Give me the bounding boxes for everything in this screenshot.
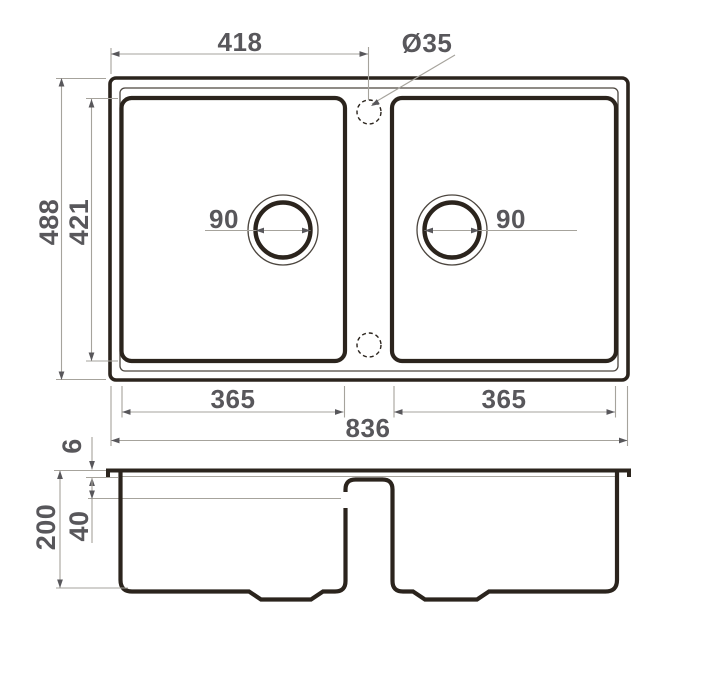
- arrowhead-icon: [57, 580, 63, 589]
- sink-outer-outline: [110, 78, 628, 380]
- dim-label-40: 40: [64, 510, 94, 541]
- arrowhead-icon: [111, 51, 120, 57]
- dim-label-836: 836: [346, 413, 391, 443]
- dim-40-upper-ledge-depth: 40: [64, 478, 95, 544]
- arrowhead-icon: [89, 491, 95, 500]
- dim-label-90-left: 90: [209, 204, 239, 234]
- section-view: [88, 471, 629, 600]
- arrowhead-icon: [394, 409, 403, 415]
- dim-label-200: 200: [31, 504, 61, 551]
- dim-label-418: 418: [218, 27, 263, 57]
- arrowhead-icon: [335, 409, 344, 415]
- tap-hole-bottom-dashed-circle: [357, 333, 381, 357]
- dim-label-365-right: 365: [482, 384, 527, 414]
- arrowhead-icon: [619, 438, 628, 444]
- arrowhead-icon: [59, 372, 65, 381]
- dim-label-488: 488: [34, 199, 64, 246]
- dim-label-365-left: 365: [211, 384, 256, 414]
- arrowhead-icon: [57, 471, 63, 480]
- arrowhead-icon: [89, 99, 95, 108]
- bowls-section-profile: [121, 471, 618, 600]
- dim-365-right-bowl: 365: [394, 384, 616, 418]
- dim-6-rim-thickness: 6: [57, 437, 118, 486]
- dim-365-left-bowl: 365: [122, 384, 345, 418]
- sink-dimension-drawing: 418 Ø35 488 421 90 90: [0, 0, 711, 675]
- dim-label-6: 6: [57, 438, 87, 454]
- arrowhead-icon: [59, 78, 65, 87]
- dim-label-421: 421: [64, 199, 94, 246]
- arrowhead-icon: [111, 438, 120, 444]
- dim-418-left-edge-to-hole: 418: [111, 27, 369, 100]
- divider-wall-line-break: [343, 492, 350, 508]
- dim-90-right-drain: 90: [425, 204, 578, 234]
- rim-inner-outline: [120, 88, 618, 371]
- dim-label-90-right: 90: [496, 204, 526, 234]
- arrowhead-icon: [89, 353, 95, 362]
- dim-label-o35: Ø35: [402, 28, 453, 58]
- arrowhead-icon: [122, 409, 131, 415]
- top-view: [110, 78, 628, 380]
- arrowhead-icon: [89, 461, 95, 470]
- arrowhead-icon: [360, 51, 369, 57]
- technical-drawing-page: 418 Ø35 488 421 90 90: [0, 0, 711, 675]
- arrowhead-icon: [607, 409, 616, 415]
- dim-836-overall-width: 836: [111, 386, 628, 446]
